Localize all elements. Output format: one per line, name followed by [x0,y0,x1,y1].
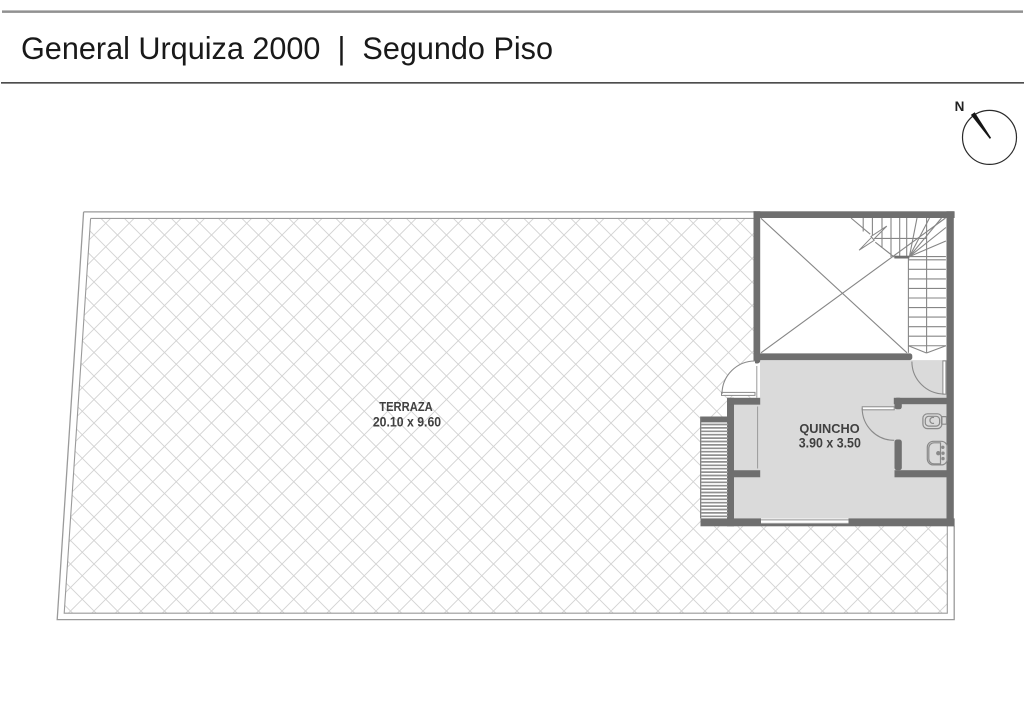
svg-text:TERRAZA: TERRAZA [379,400,433,414]
svg-text:N: N [955,99,965,114]
svg-text:QUINCHO: QUINCHO [799,422,860,436]
svg-text:3.90 x 3.50: 3.90 x 3.50 [799,435,861,450]
svg-text:General Urquiza 2000 | Segun: General Urquiza 2000 | Segundo Piso [21,30,553,66]
svg-text:20.10 x 9.60: 20.10 x 9.60 [373,415,441,430]
